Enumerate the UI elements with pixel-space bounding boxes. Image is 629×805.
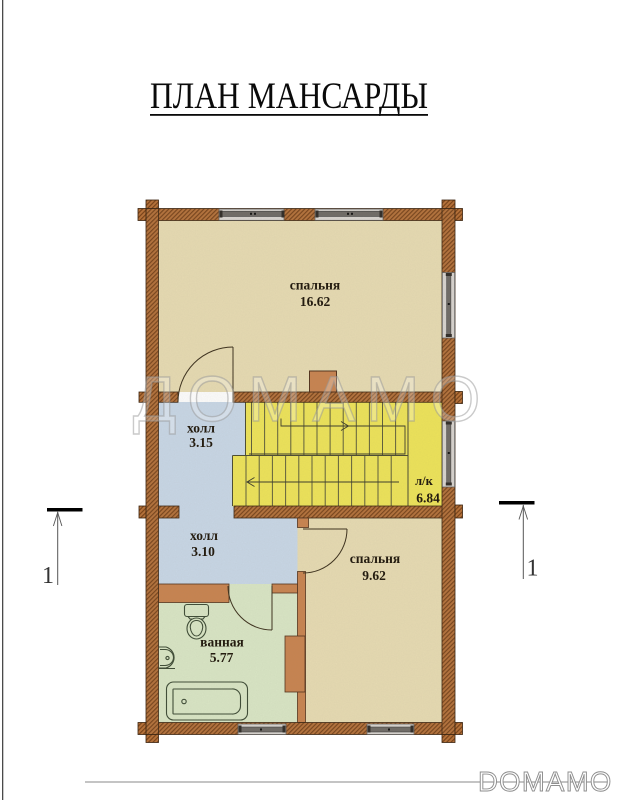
svg-text:6.84: 6.84 bbox=[416, 491, 440, 506]
svg-text:л/к: л/к bbox=[415, 474, 433, 488]
svg-text:холл: холл bbox=[190, 528, 218, 543]
svg-text:5.77: 5.77 bbox=[210, 650, 234, 665]
svg-text:9.62: 9.62 bbox=[362, 568, 386, 583]
svg-text:ванная: ванная bbox=[200, 635, 244, 650]
svg-text:1: 1 bbox=[42, 563, 54, 589]
svg-text:холл: холл bbox=[187, 421, 215, 436]
svg-text:3.15: 3.15 bbox=[189, 435, 213, 450]
svg-text:спальня: спальня bbox=[290, 278, 340, 293]
svg-text:16.62: 16.62 bbox=[300, 294, 331, 309]
svg-text:1: 1 bbox=[527, 556, 539, 582]
svg-text:3.10: 3.10 bbox=[191, 544, 215, 559]
svg-text:DOMAMO: DOMAMO bbox=[478, 766, 613, 797]
svg-text:спальня: спальня bbox=[350, 551, 400, 566]
svg-text:ПЛАН МАНСАРДЫ: ПЛАН МАНСАРДЫ bbox=[150, 75, 428, 116]
